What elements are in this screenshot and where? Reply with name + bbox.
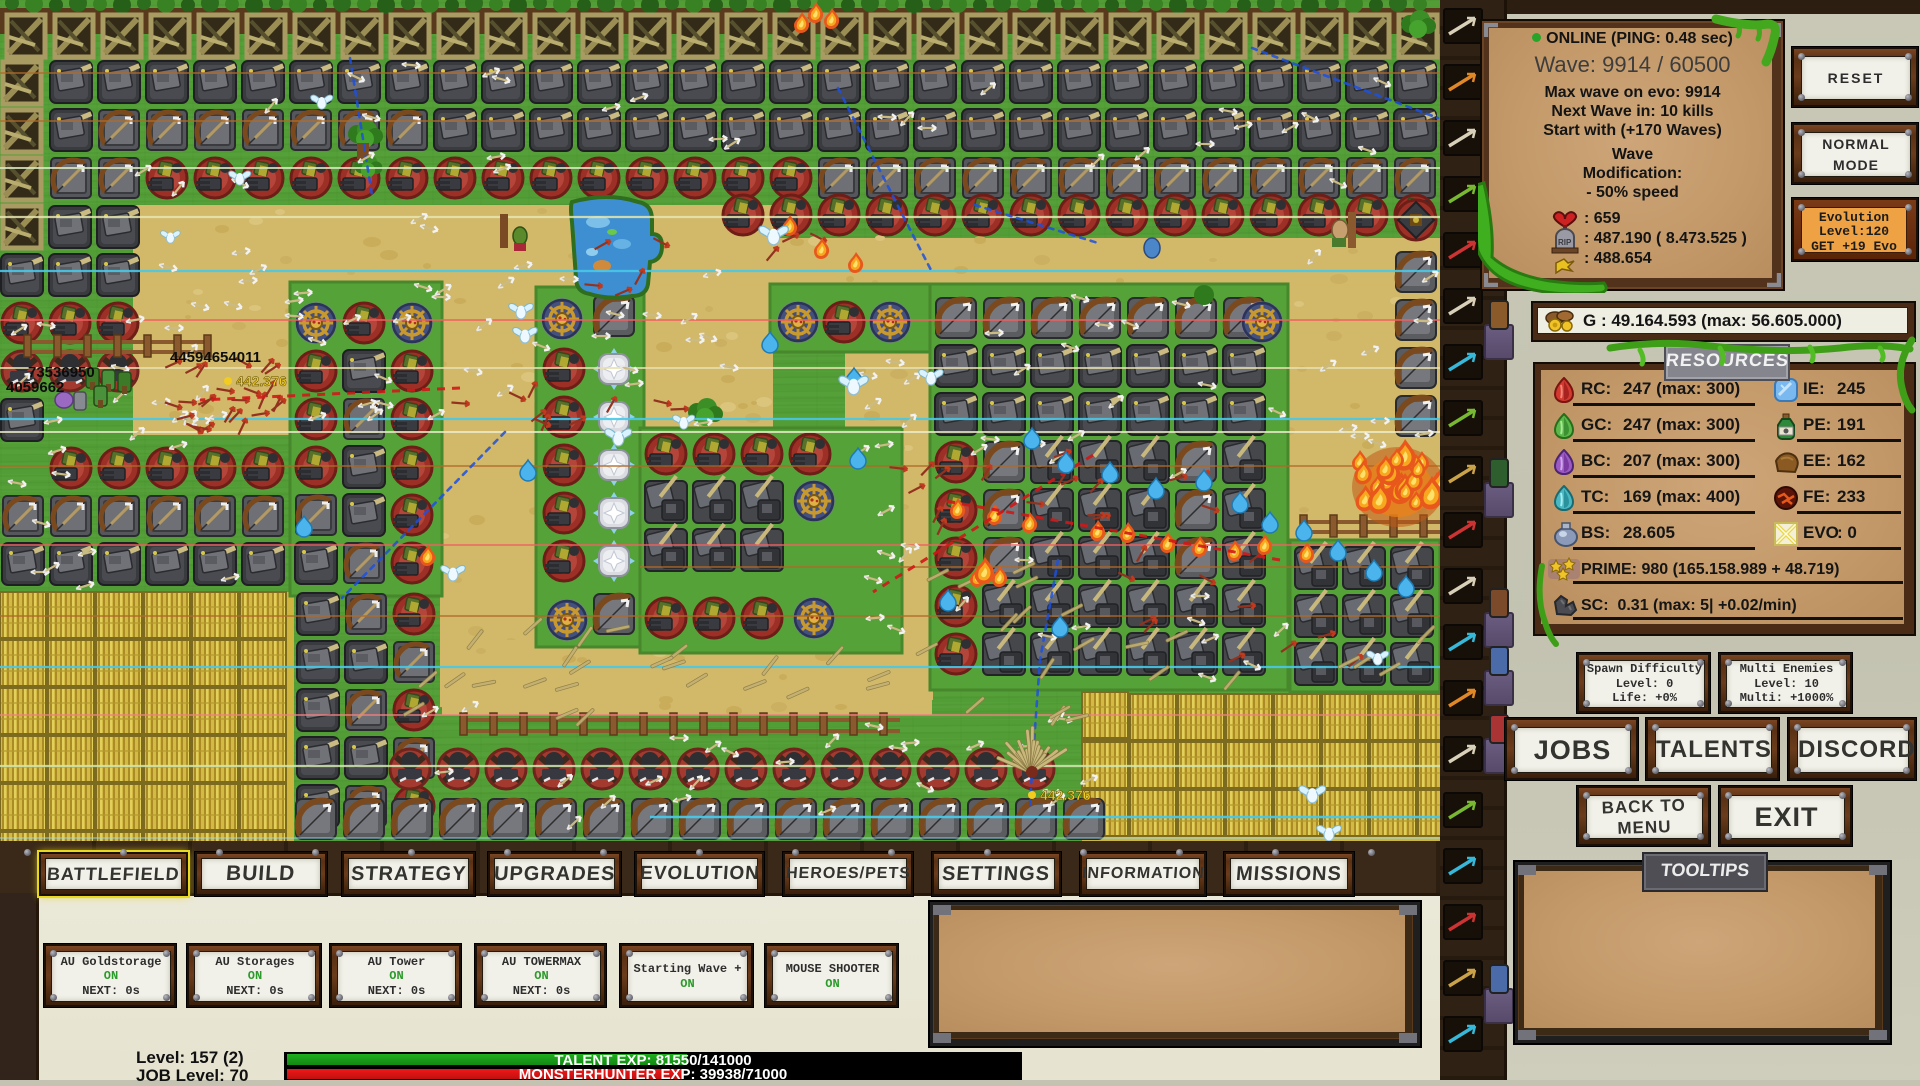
svg-text:442.376: 442.376 (236, 373, 287, 389)
svg-text:4059662: 4059662 (6, 379, 64, 396)
svg-text:44594654011: 44594654011 (170, 349, 261, 366)
svg-text:442.376: 442.376 (1040, 787, 1091, 803)
